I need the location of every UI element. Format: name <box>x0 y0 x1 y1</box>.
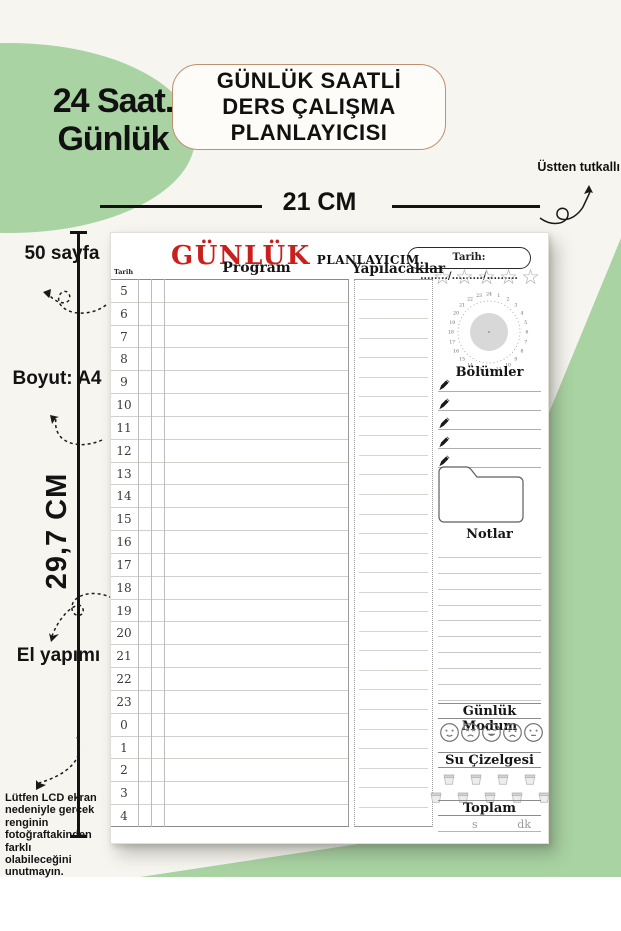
todo-line <box>359 515 428 535</box>
todo-line <box>359 456 428 476</box>
clock-face: 123456789101112131415161718192021222324 <box>447 290 531 374</box>
todo-line <box>359 378 428 398</box>
folder-icon <box>437 460 525 524</box>
todo-line <box>359 690 428 710</box>
hour-label: 12 <box>111 440 137 462</box>
water-cup-icon <box>496 771 510 787</box>
product-image: 24 Saat. Günlük GÜNLÜK SAATLİ DERS ÇALIŞ… <box>0 0 621 931</box>
todo-line <box>359 554 428 574</box>
total-minutes-unit: dk <box>517 818 531 831</box>
hour-label: 3 <box>111 782 137 804</box>
product-title-box: GÜNLÜK SAATLİ DERS ÇALIŞMA PLANLAYICISI <box>172 64 446 150</box>
title-line2: DERS ÇALIŞMA <box>173 94 445 120</box>
total-header: Toplam <box>438 800 541 816</box>
dashed-curl-arrow-icon <box>25 733 85 791</box>
disclaimer: Lütfen LCD ekrannedeniyle gerçekrenginin… <box>5 792 97 879</box>
hour-label: 14 <box>111 485 137 507</box>
todo-line <box>359 808 428 828</box>
svg-text:1: 1 <box>497 293 500 299</box>
mood-row <box>439 722 540 743</box>
water-cup-icon <box>469 771 483 787</box>
table-divider <box>138 279 139 827</box>
note-line <box>438 653 541 669</box>
page-count-label: 50 sayfa <box>12 243 112 265</box>
todo-line <box>359 671 428 691</box>
svg-text:3: 3 <box>514 303 517 309</box>
hour-row: 17 <box>111 554 348 577</box>
hour-row: 1 <box>111 737 348 760</box>
hour-row: 20 <box>111 622 348 645</box>
svg-text:6: 6 <box>526 330 529 336</box>
todo-line <box>359 495 428 515</box>
hour-row: 2 <box>111 759 348 782</box>
disclaimer-line: unutmayın. <box>5 866 97 878</box>
hour-row: 6 <box>111 303 348 326</box>
disclaimer-line: fotoğraftakinden <box>5 829 97 841</box>
todo-line <box>359 397 428 417</box>
hour-row: 0 <box>111 714 348 737</box>
hour-label: 23 <box>111 691 137 713</box>
hour-row: 15 <box>111 508 348 531</box>
note-line <box>438 558 541 574</box>
svg-text:5: 5 <box>524 320 527 326</box>
dashed-curve-arrow-icon <box>22 398 107 448</box>
program-header: Program <box>164 260 349 276</box>
hour-row: 12 <box>111 440 348 463</box>
hour-label: 7 <box>111 326 137 348</box>
title-line1: GÜNLÜK SAATLİ <box>173 68 445 94</box>
notes-header: Notlar <box>438 527 541 542</box>
height-line-cap-top <box>70 231 87 234</box>
hour-label: 9 <box>111 371 137 393</box>
note-line <box>438 574 541 590</box>
hour-label: 13 <box>111 463 137 485</box>
hour-label: 2 <box>111 759 137 781</box>
date-column-label: Tarih <box>114 268 133 276</box>
svg-text:24: 24 <box>486 292 492 298</box>
total-units-row: s dk <box>438 818 541 832</box>
hour-label: 22 <box>111 668 137 690</box>
water-cup-icon <box>442 771 456 787</box>
hour-label: 21 <box>111 645 137 667</box>
disclaimer-line: Lütfen LCD ekran <box>5 792 97 804</box>
hour-label: 18 <box>111 577 137 599</box>
todo-line <box>359 339 428 359</box>
hour-row: 5 <box>111 280 348 303</box>
water-header: Su Çizelgesi <box>438 752 541 768</box>
hour-label: 19 <box>111 600 137 622</box>
hour-row: 22 <box>111 668 348 691</box>
svg-text:7: 7 <box>524 339 527 345</box>
section-line <box>438 411 541 430</box>
hour-row: 8 <box>111 348 348 371</box>
width-dimension-label: 21 CM <box>272 188 367 217</box>
hour-row: 3 <box>111 782 348 805</box>
pencil-icon <box>438 377 452 391</box>
todo-line <box>359 358 428 378</box>
hour-row: 13 <box>111 463 348 486</box>
hour-row: 19 <box>111 600 348 623</box>
todo-header: Yapılacaklar <box>352 261 435 277</box>
svg-text:4: 4 <box>520 311 523 317</box>
grin-face-icon <box>481 722 502 743</box>
table-divider <box>164 279 165 827</box>
hour-row: 9 <box>111 371 348 394</box>
todo-line <box>359 436 428 456</box>
hour-row: 23 <box>111 691 348 714</box>
note-line <box>438 542 541 558</box>
hour-row: 21 <box>111 645 348 668</box>
pencil-icon <box>438 434 452 448</box>
water-row-1 <box>438 771 541 787</box>
mood-header: Günlük Modum <box>438 703 541 719</box>
dashed-curl-arrow-icon <box>30 272 110 317</box>
planner-page: GÜNLÜK PLANLAYICIM. Tarih: ......../....… <box>110 232 549 844</box>
disclaimer-line: nedeniyle gerçek <box>5 804 97 816</box>
section-line <box>438 392 541 411</box>
section-line <box>438 430 541 449</box>
hour-row: 16 <box>111 531 348 554</box>
todo-line <box>359 651 428 671</box>
plain-face-icon <box>523 722 544 743</box>
svg-text:23: 23 <box>476 293 482 299</box>
todo-line <box>359 632 428 652</box>
hour-label: 0 <box>111 714 137 736</box>
hour-row: 4 <box>111 805 348 828</box>
svg-text:17: 17 <box>449 339 455 345</box>
pencil-icon <box>438 396 452 410</box>
table-divider <box>151 279 152 827</box>
todo-line <box>359 788 428 808</box>
hour-label: 16 <box>111 531 137 553</box>
section-line <box>438 373 541 392</box>
svg-text:18: 18 <box>448 330 454 336</box>
svg-text:21: 21 <box>459 303 465 309</box>
handmade-label: El yapımı <box>6 645 111 667</box>
disclaimer-line: renginin <box>5 817 97 829</box>
note-line <box>438 606 541 622</box>
note-line <box>438 637 541 653</box>
hour-label: 17 <box>111 554 137 576</box>
glued-top-label: Üstten tutkallı <box>520 160 620 174</box>
todo-line <box>359 573 428 593</box>
title-line3: PLANLAYICISI <box>173 120 445 146</box>
svg-text:16: 16 <box>453 349 459 355</box>
water-cup-icon <box>523 771 537 787</box>
todo-line <box>359 769 428 789</box>
hour-row: 11 <box>111 417 348 440</box>
hour-row: 18 <box>111 577 348 600</box>
dashed-curl-arrow-icon <box>42 588 117 648</box>
section-lines <box>438 373 541 468</box>
todo-line <box>359 475 428 495</box>
hour-row: 14 <box>111 485 348 508</box>
pencil-icon <box>438 415 452 429</box>
note-line <box>438 685 541 701</box>
svg-text:20: 20 <box>453 311 459 317</box>
cry-face-icon <box>502 722 523 743</box>
todo-line <box>359 417 428 437</box>
todo-line <box>359 280 428 300</box>
curl-arrow-icon <box>537 180 599 225</box>
size-label: Boyut: A4 <box>2 368 112 390</box>
hour-label: 20 <box>111 622 137 644</box>
width-line-right <box>392 205 540 208</box>
total-hours-unit: s <box>472 818 478 831</box>
todo-line <box>359 710 428 730</box>
hour-label: 4 <box>111 805 137 827</box>
program-rows: 56789101112131415161718192021222301234 <box>111 279 349 827</box>
note-line <box>438 590 541 606</box>
disclaimer-line: farklı olabileceğini <box>5 842 97 867</box>
svg-text:8: 8 <box>520 349 523 355</box>
hour-label: 1 <box>111 737 137 759</box>
hour-label: 5 <box>111 280 137 302</box>
svg-text:22: 22 <box>467 297 473 303</box>
hour-label: 10 <box>111 394 137 416</box>
todo-line <box>359 319 428 339</box>
hour-row: 7 <box>111 326 348 349</box>
svg-text:2: 2 <box>507 297 510 303</box>
width-line-left <box>100 205 262 208</box>
todo-lines <box>354 279 433 827</box>
smile-face-icon <box>439 722 460 743</box>
hour-label: 8 <box>111 348 137 370</box>
todo-line <box>359 593 428 613</box>
hour-row: 10 <box>111 394 348 417</box>
note-line <box>438 669 541 685</box>
svg-text:19: 19 <box>449 320 455 326</box>
todo-line <box>359 749 428 769</box>
todo-line <box>359 730 428 750</box>
page-sidebar: 123456789101112131415161718192021222324 … <box>436 279 544 839</box>
angry-face-icon <box>460 722 481 743</box>
todo-line <box>359 534 428 554</box>
hour-label: 15 <box>111 508 137 530</box>
note-line <box>438 621 541 637</box>
todo-line <box>359 612 428 632</box>
note-lines <box>438 542 541 701</box>
hour-label: 11 <box>111 417 137 439</box>
todo-line <box>359 300 428 320</box>
svg-text:15: 15 <box>459 356 465 362</box>
svg-text:9: 9 <box>514 356 517 362</box>
hour-label: 6 <box>111 303 137 325</box>
